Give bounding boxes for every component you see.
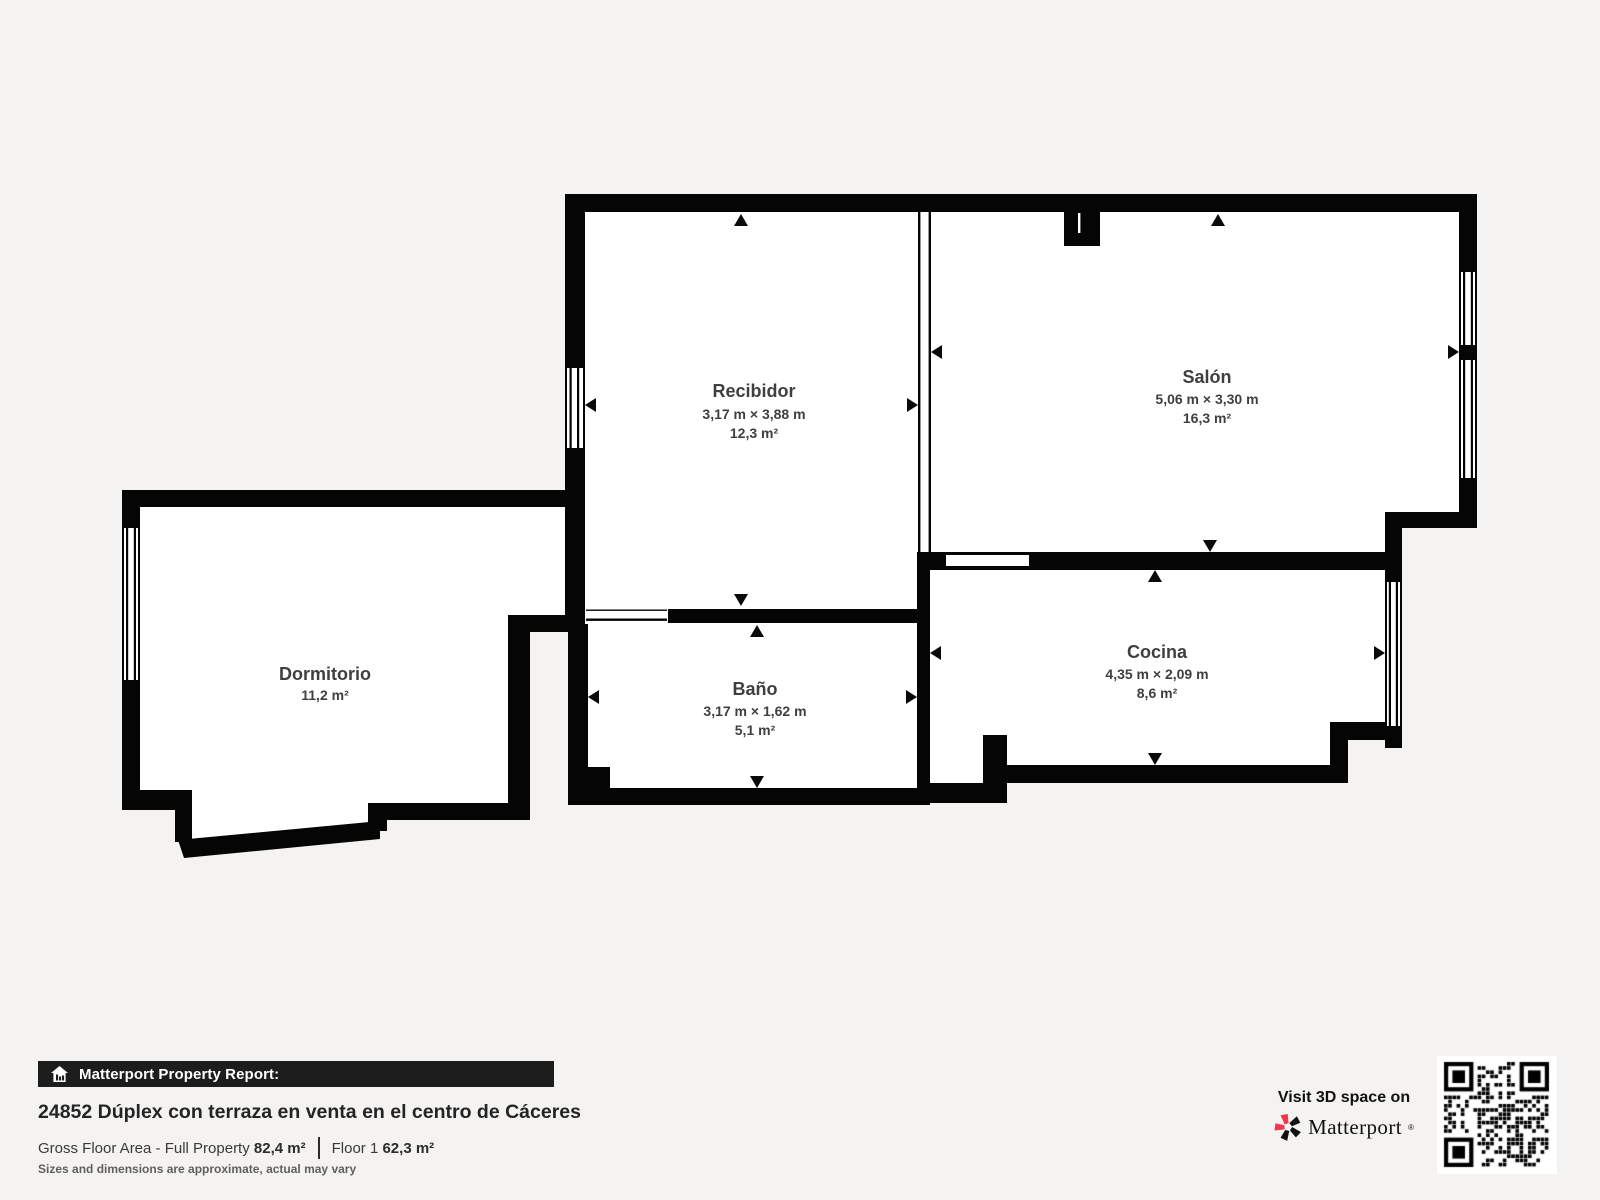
partition-line bbox=[918, 212, 920, 552]
window-line bbox=[134, 528, 136, 680]
floor-plan: Recibidor 3,17 m × 3,88 m 12,3 m² Salón … bbox=[0, 0, 1600, 1200]
door-edge-line bbox=[586, 610, 667, 611]
wall-segment bbox=[1007, 765, 1348, 783]
floor1-value: 62,3 m² bbox=[382, 1140, 434, 1157]
wall-segment bbox=[983, 735, 1007, 800]
wall-segment bbox=[917, 552, 930, 805]
room-area: 16,3 m² bbox=[1183, 410, 1232, 426]
window-line bbox=[1463, 272, 1465, 345]
room-dims: 3,17 m × 3,88 m bbox=[702, 406, 805, 422]
room-name: Dormitorio bbox=[279, 664, 371, 684]
matterport-brand: Matterport® bbox=[1254, 1113, 1434, 1141]
window-line bbox=[1389, 582, 1391, 726]
room-name: Cocina bbox=[1127, 642, 1188, 662]
qr-code bbox=[1437, 1056, 1557, 1174]
room-area: 8,6 m² bbox=[1137, 685, 1178, 701]
window-line bbox=[1396, 582, 1398, 726]
wall-segment bbox=[588, 788, 930, 805]
wall-seam bbox=[1078, 213, 1080, 233]
gross-floor-area-value: 82,4 m² bbox=[254, 1140, 306, 1157]
visit-3d-label: Visit 3D space on bbox=[1254, 1089, 1434, 1107]
gross-floor-area-label: Gross Floor Area - Full Property bbox=[38, 1140, 250, 1157]
visit-3d-cta: Visit 3D space on Matterport® bbox=[1254, 1089, 1434, 1141]
floor1-label: Floor 1 bbox=[332, 1140, 379, 1157]
glass-partition bbox=[918, 212, 931, 552]
room-name: Recibidor bbox=[712, 381, 795, 401]
room-floors bbox=[140, 212, 1459, 838]
room-name: Salón bbox=[1182, 367, 1231, 387]
partition-line bbox=[929, 212, 931, 552]
registered-mark: ® bbox=[1408, 1123, 1414, 1132]
wall-segment bbox=[368, 803, 530, 820]
wall-segment bbox=[508, 615, 530, 820]
matterport-wordmark: Matterport bbox=[1308, 1115, 1402, 1140]
room-dims: 5,06 m × 3,30 m bbox=[1155, 391, 1258, 407]
room-dims: 4,35 m × 2,09 m bbox=[1105, 666, 1208, 682]
property-title: 24852 Dúplex con terraza en venta en el … bbox=[38, 1101, 738, 1124]
area-summary: Gross Floor Area - Full Property 82,4 m²… bbox=[38, 1137, 434, 1159]
window-line bbox=[1471, 272, 1473, 345]
window-line bbox=[126, 528, 128, 680]
window-line bbox=[570, 368, 572, 448]
window-line bbox=[577, 368, 579, 448]
divider bbox=[318, 1137, 320, 1159]
disclaimer-text: Sizes and dimensions are approximate, ac… bbox=[38, 1162, 356, 1176]
room-area: 11,2 m² bbox=[301, 687, 349, 703]
wall-segment bbox=[1064, 212, 1100, 246]
room-area: 5,1 m² bbox=[735, 722, 776, 738]
matterport-logo-icon bbox=[1274, 1113, 1302, 1141]
window-line bbox=[1463, 360, 1465, 478]
room-area: 12,3 m² bbox=[730, 425, 779, 441]
wall-segment bbox=[175, 790, 192, 842]
wall-segment bbox=[122, 490, 585, 507]
door-threshold-line bbox=[586, 619, 667, 621]
window-line bbox=[1471, 360, 1473, 478]
wall-segment bbox=[565, 194, 1477, 212]
room-name: Baño bbox=[733, 679, 778, 699]
window bbox=[567, 368, 583, 448]
house-report-icon bbox=[51, 1066, 68, 1082]
report-label: Matterport Property Report: bbox=[79, 1066, 279, 1083]
qr-code-canvas bbox=[1437, 1056, 1557, 1174]
opening-gap bbox=[946, 555, 1029, 566]
report-header-bar: Matterport Property Report: bbox=[38, 1061, 554, 1087]
room-dims: 3,17 m × 1,62 m bbox=[703, 703, 806, 719]
